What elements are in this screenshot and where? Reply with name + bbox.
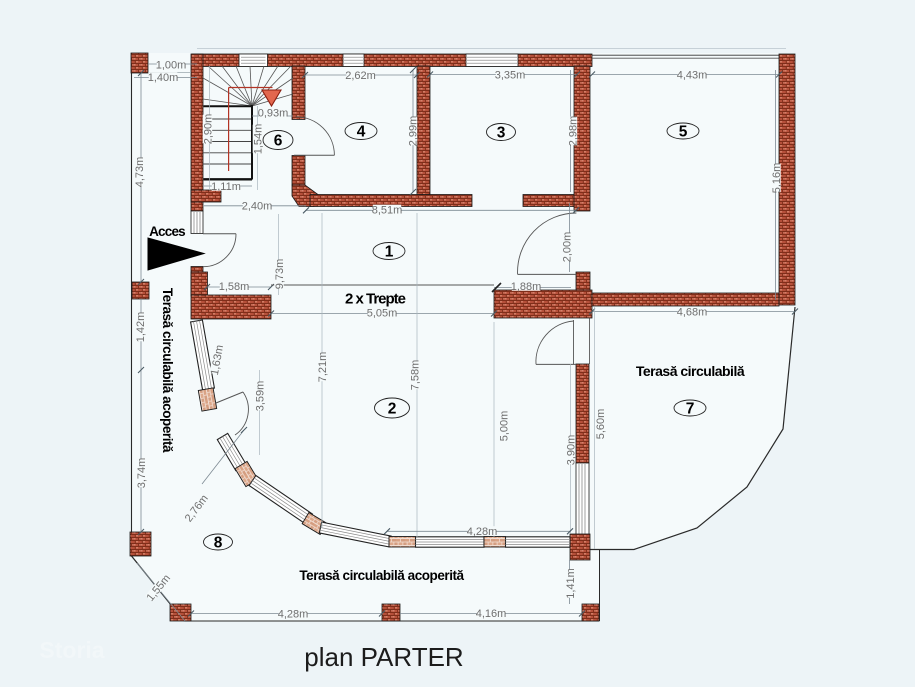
svg-text:2: 2 <box>388 401 397 418</box>
svg-text:3,74m: 3,74m <box>136 458 148 489</box>
svg-text:0,93m: 0,93m <box>258 108 289 120</box>
svg-text:3: 3 <box>497 125 506 142</box>
svg-text:1,88m: 1,88m <box>511 281 542 293</box>
svg-text:Terasă circulabilă acoperită: Terasă circulabilă acoperită <box>160 288 175 453</box>
svg-text:4,16m: 4,16m <box>476 608 507 620</box>
svg-text:4,43m: 4,43m <box>677 70 708 82</box>
svg-text:5,60m: 5,60m <box>595 409 607 440</box>
svg-text:8: 8 <box>214 535 223 552</box>
svg-text:plan PARTER: plan PARTER <box>304 642 463 672</box>
svg-text:7,58m: 7,58m <box>410 360 422 391</box>
svg-text:1,58m: 1,58m <box>219 281 250 293</box>
svg-text:1,11m: 1,11m <box>211 181 241 193</box>
svg-text:4,68m: 4,68m <box>677 307 708 319</box>
svg-text:7: 7 <box>686 401 695 418</box>
svg-text:4: 4 <box>357 124 366 141</box>
svg-text:1: 1 <box>385 244 394 261</box>
svg-text:2 x Trepte: 2 x Trepte <box>345 290 406 307</box>
svg-text:Terasă circulabilă: Terasă circulabilă <box>636 363 745 379</box>
svg-text:2,00m: 2,00m <box>562 232 574 263</box>
svg-text:Storia: Storia <box>39 637 104 663</box>
svg-text:1,42m: 1,42m <box>135 312 147 343</box>
svg-text:5,05m: 5,05m <box>367 308 398 320</box>
svg-text:9,73m: 9,73m <box>274 259 286 290</box>
svg-text:Acces: Acces <box>149 224 185 239</box>
svg-text:8,51m: 8,51m <box>372 205 403 217</box>
svg-text:1,41m: 1,41m <box>565 568 577 599</box>
svg-text:3,59m: 3,59m <box>255 381 267 412</box>
svg-text:1,00m: 1,00m <box>156 60 187 72</box>
svg-text:4,28m: 4,28m <box>467 526 498 538</box>
svg-text:5: 5 <box>679 124 688 141</box>
svg-text:6: 6 <box>274 133 283 150</box>
svg-text:3,35m: 3,35m <box>495 70 526 82</box>
svg-text:2,99m: 2,99m <box>408 116 420 147</box>
svg-text:2,62m: 2,62m <box>345 70 376 82</box>
svg-text:3,90m: 3,90m <box>566 435 578 466</box>
svg-text:4,73m: 4,73m <box>134 157 146 188</box>
svg-text:Terasă circulabilă acoperită: Terasă circulabilă acoperită <box>299 568 464 583</box>
svg-text:1,40m: 1,40m <box>148 72 179 84</box>
svg-text:4,28m: 4,28m <box>278 609 309 621</box>
svg-text:2,40m: 2,40m <box>242 201 273 213</box>
svg-text:2,98m: 2,98m <box>568 116 580 147</box>
svg-text:7,21m: 7,21m <box>317 352 329 383</box>
svg-text:5,16m: 5,16m <box>771 163 783 194</box>
svg-text:2,90m: 2,90m <box>203 114 215 145</box>
svg-text:5,00m: 5,00m <box>499 411 511 442</box>
